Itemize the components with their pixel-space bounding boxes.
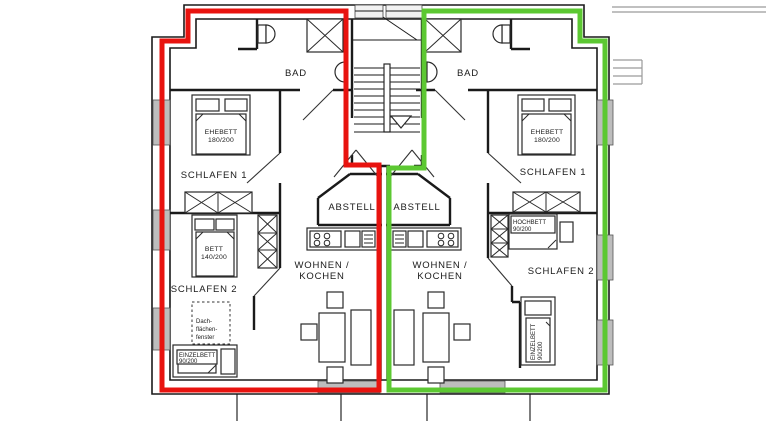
- room-label-bad-left: BAD: [285, 68, 307, 79]
- room-label-wohnen-left-2: KOCHEN: [299, 271, 344, 282]
- bed-size: 90/200: [538, 341, 544, 360]
- stair-railing: [384, 64, 390, 132]
- bed-label: EHEBETT: [205, 129, 238, 136]
- room-label-schlafen2-left: SCHLAFEN 2: [171, 284, 238, 295]
- bed-label: EINZELBETT: [531, 323, 537, 360]
- wardrobe-icon: [513, 192, 580, 212]
- bed-size: 90/200: [179, 359, 198, 365]
- double-bed: [518, 95, 575, 155]
- room-label-schlafen2-right: SCHLAFEN 2: [528, 266, 595, 277]
- dining-set: [301, 292, 371, 383]
- bed-label: HOCHBETT: [513, 220, 546, 226]
- room-label-abstell-right: ABSTELL: [393, 202, 440, 213]
- room-label-bad-right: BAD: [457, 68, 479, 79]
- room-label-wohnen-right-2: KOCHEN: [417, 271, 462, 282]
- roof-window-label-2: flächen-: [196, 327, 217, 333]
- dining-set: [394, 292, 470, 383]
- toilet-icon: [258, 25, 266, 43]
- sink-icon: [427, 62, 437, 82]
- stair-direction-arrow: [391, 116, 411, 128]
- room-label-wohnen-right-1: WOHNEN /: [413, 260, 468, 271]
- toilet-icon: [502, 25, 510, 43]
- party-wall: [381, 166, 387, 381]
- roof-window-label-1: Dach-: [196, 319, 212, 325]
- floor-plan-drawing: BAD EHEBETT 180/200 SCHLAFEN 1 ABSTELL B…: [0, 0, 768, 422]
- room-label-abstell-left: ABSTELL: [328, 202, 375, 213]
- nightstand: [560, 222, 573, 242]
- kitchen-counter: [307, 228, 380, 250]
- floor-plan: BAD EHEBETT 180/200 SCHLAFEN 1 ABSTELL B…: [0, 0, 768, 422]
- wardrobe-icon: [185, 192, 252, 213]
- bed-size: 180/200: [208, 137, 234, 144]
- bed-size: 140/200: [201, 254, 227, 261]
- sink-basin-icon: [345, 231, 360, 247]
- room-label-wohnen-left-1: WOHNEN /: [295, 260, 350, 271]
- double-bed: [192, 95, 250, 155]
- cabinet-icon: [258, 215, 277, 268]
- cabinet-icon: [491, 215, 508, 257]
- bed-label: BETT: [205, 246, 223, 253]
- bed-size: 180/200: [534, 137, 560, 144]
- kitchen-counter: [388, 228, 461, 250]
- room-label-schlafen1-right: SCHLAFEN 1: [520, 167, 587, 178]
- bed-label: EHEBETT: [531, 129, 564, 136]
- room-label-schlafen1-left: SCHLAFEN 1: [181, 170, 248, 181]
- furniture-right: [388, 19, 580, 383]
- roof-window-label-3: fenster: [196, 335, 214, 341]
- bed-size: 90/200: [513, 227, 532, 233]
- stairwell: [352, 17, 422, 132]
- sink-basin-icon: [408, 231, 423, 247]
